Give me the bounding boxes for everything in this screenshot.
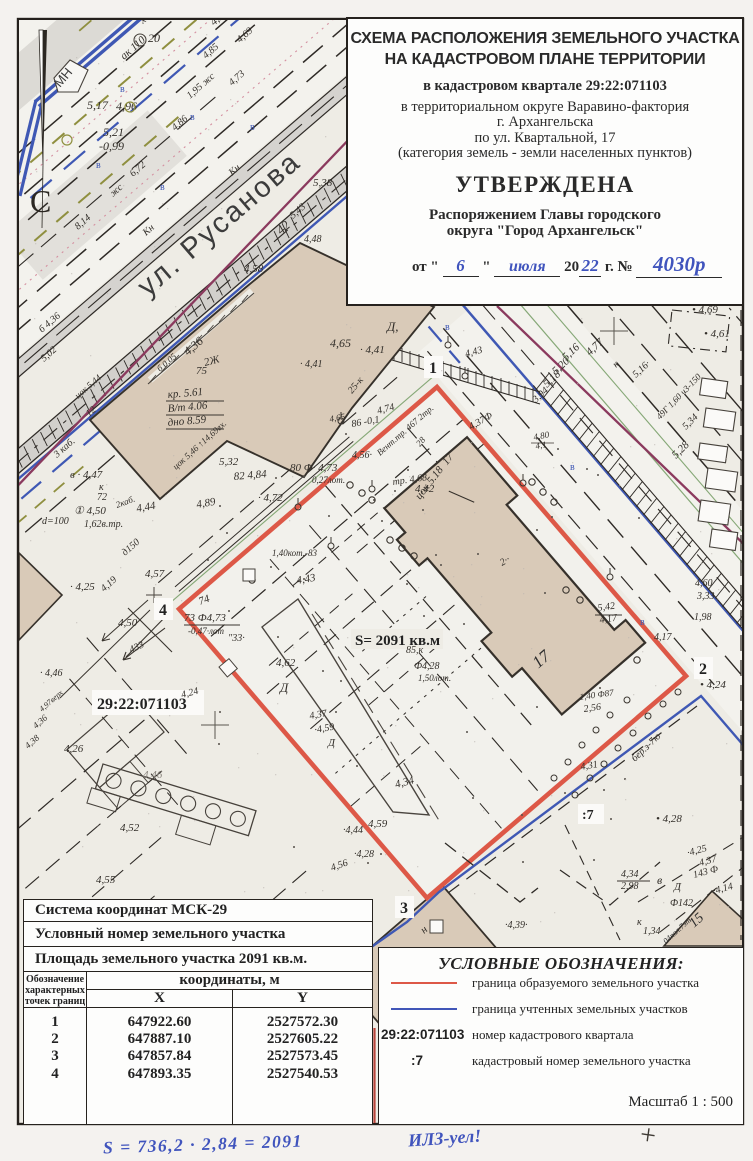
svg-text::7: :7 (582, 808, 594, 823)
svg-text:в: в (120, 84, 125, 95)
svg-text:· 4,46: · 4,46 (40, 668, 63, 679)
svg-text:80 Ф· 4,73: 80 Ф· 4,73 (290, 462, 338, 474)
svg-text:4,62: 4,62 (276, 657, 296, 669)
svg-text:·4,44: ·4,44 (343, 825, 363, 836)
svg-text:4,57: 4,57 (145, 568, 165, 580)
svg-text:29:22:071103: 29:22:071103 (97, 696, 187, 713)
svg-text:• 4,61: • 4,61 (704, 328, 730, 340)
svg-text:· 4,41: · 4,41 (360, 344, 385, 356)
svg-text:ʺ33·: ʺ33· (228, 633, 245, 644)
svg-text:4,48: 4,48 (304, 234, 322, 245)
svg-text:Ф142: Ф142 (670, 898, 693, 909)
svg-text:4,60: 4,60 (695, 578, 713, 589)
svg-text:4,52: 4,52 (120, 822, 140, 834)
svg-text:· 4,25: · 4,25 (70, 581, 95, 593)
svg-text:4,17: 4,17 (654, 632, 673, 643)
svg-text:d=100: d=100 (42, 516, 69, 527)
svg-text:2: 2 (699, 661, 707, 678)
svg-text:2,98: 2,98 (621, 881, 639, 892)
svg-text:1,50лот.: 1,50лот. (418, 673, 451, 683)
svg-text:85,к: 85,к (406, 645, 424, 656)
svg-text:в: в (160, 182, 165, 193)
svg-text:0,27лот.: 0,27лот. (312, 475, 345, 485)
svg-text:· 4,72: · 4,72 (258, 492, 283, 504)
svg-text:4,55: 4,55 (96, 874, 116, 886)
svg-text:73 Ф4,73: 73 Ф4,73 (184, 612, 226, 624)
svg-text:5,17: 5,17 (87, 98, 109, 112)
svg-text:① 4,50: ① 4,50 (74, 505, 106, 517)
svg-text:4,59: 4,59 (368, 818, 388, 830)
svg-text:в · 4,47: в · 4,47 (70, 469, 103, 481)
svg-text:72: 72 (97, 492, 107, 503)
svg-text:3: 3 (400, 900, 408, 917)
svg-text:5,21: 5,21 (103, 125, 124, 139)
svg-text:20: 20 (148, 31, 160, 45)
svg-text:в: в (657, 873, 662, 887)
svg-text:Д: Д (327, 737, 336, 749)
svg-text:Д,: Д, (385, 319, 399, 334)
svg-text:·4,28: ·4,28 (354, 849, 374, 860)
svg-text:· 4,41: · 4,41 (300, 359, 323, 370)
svg-text:в: в (570, 462, 575, 473)
svg-text:4,42: 4,42 (415, 483, 435, 495)
svg-text:в: в (190, 112, 195, 123)
svg-text:4,46: 4,46 (143, 769, 163, 781)
svg-text:3,33: 3,33 (696, 591, 715, 602)
svg-text:• 4,24: • 4,24 (700, 679, 726, 691)
svg-text:4,50: 4,50 (118, 617, 138, 629)
svg-text:• 4,28: • 4,28 (656, 813, 682, 825)
svg-text:1: 1 (429, 360, 437, 377)
svg-text:4,26: 4,26 (64, 743, 84, 755)
svg-text:S= 2091 кв.м: S= 2091 кв.м (355, 633, 440, 649)
svg-text:Д: Д (278, 680, 289, 695)
svg-text:4,58: 4,58 (244, 263, 264, 275)
svg-text:1,34: 1,34 (643, 926, 661, 937)
svg-text:в: в (445, 322, 450, 333)
svg-text:в: в (96, 160, 101, 171)
svg-text:1,40кот.-83: 1,40кот.-83 (272, 548, 317, 558)
svg-text:в: в (250, 122, 255, 133)
svg-text:-0,99: -0,99 (99, 139, 124, 153)
svg-text:1,98: 1,98 (694, 612, 712, 623)
svg-text:5,32: 5,32 (219, 456, 239, 468)
svg-text:5,38: 5,38 (313, 177, 333, 189)
svg-text:·4,39·: ·4,39· (505, 920, 528, 931)
svg-text:4,56·: 4,56· (352, 450, 372, 461)
svg-text:к: к (637, 917, 642, 928)
svg-text:4,34: 4,34 (621, 869, 639, 880)
svg-text:С: С (30, 183, 51, 219)
svg-text:4: 4 (159, 602, 167, 619)
svg-text:1,62в.тр.: 1,62в.тр. (84, 519, 123, 530)
svg-text:4,65: 4,65 (330, 336, 351, 350)
svg-text:в: в (640, 617, 645, 628)
svg-text:Ф4,28: Ф4,28 (414, 661, 440, 672)
svg-text:-0,47·лот: -0,47·лот (188, 626, 225, 636)
svg-text:Д: Д (673, 881, 682, 893)
